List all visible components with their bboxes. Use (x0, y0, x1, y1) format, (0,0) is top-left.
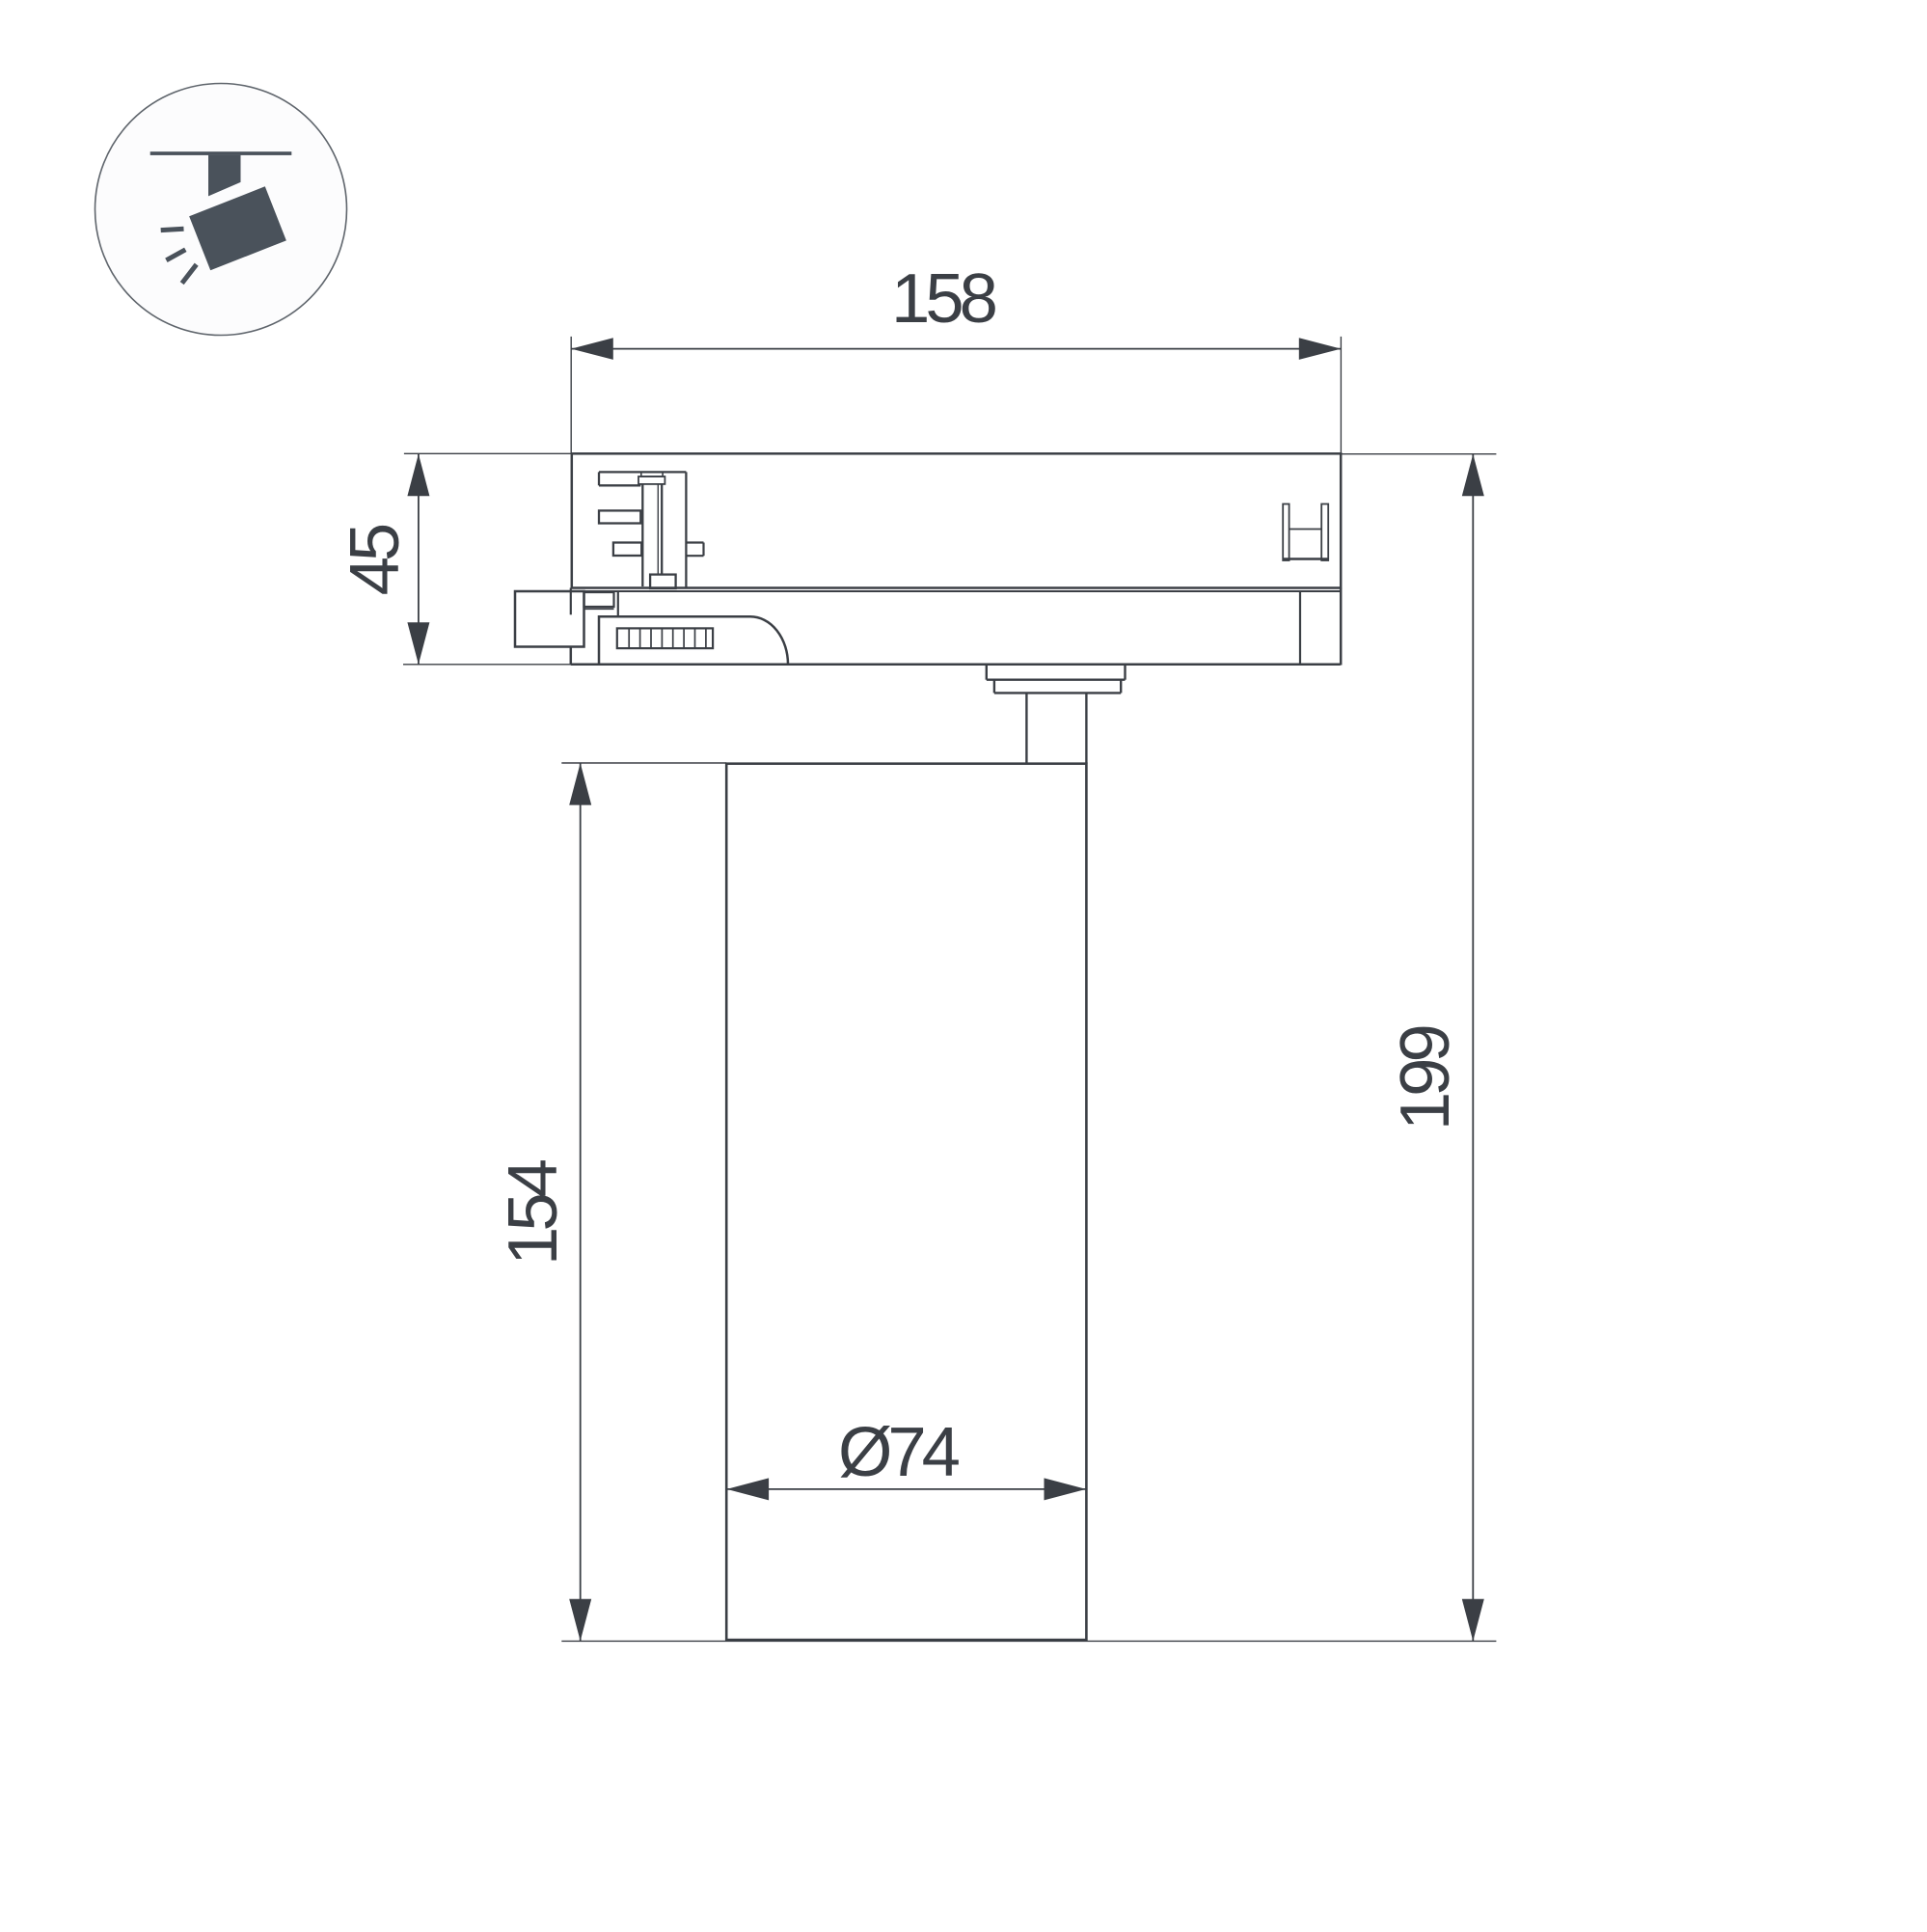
svg-text:158: 158 (891, 259, 996, 338)
svg-text:199: 199 (1386, 1027, 1464, 1131)
svg-text:154: 154 (494, 1159, 572, 1265)
svg-text:45: 45 (336, 525, 414, 595)
svg-text:Ø74: Ø74 (838, 1413, 960, 1491)
